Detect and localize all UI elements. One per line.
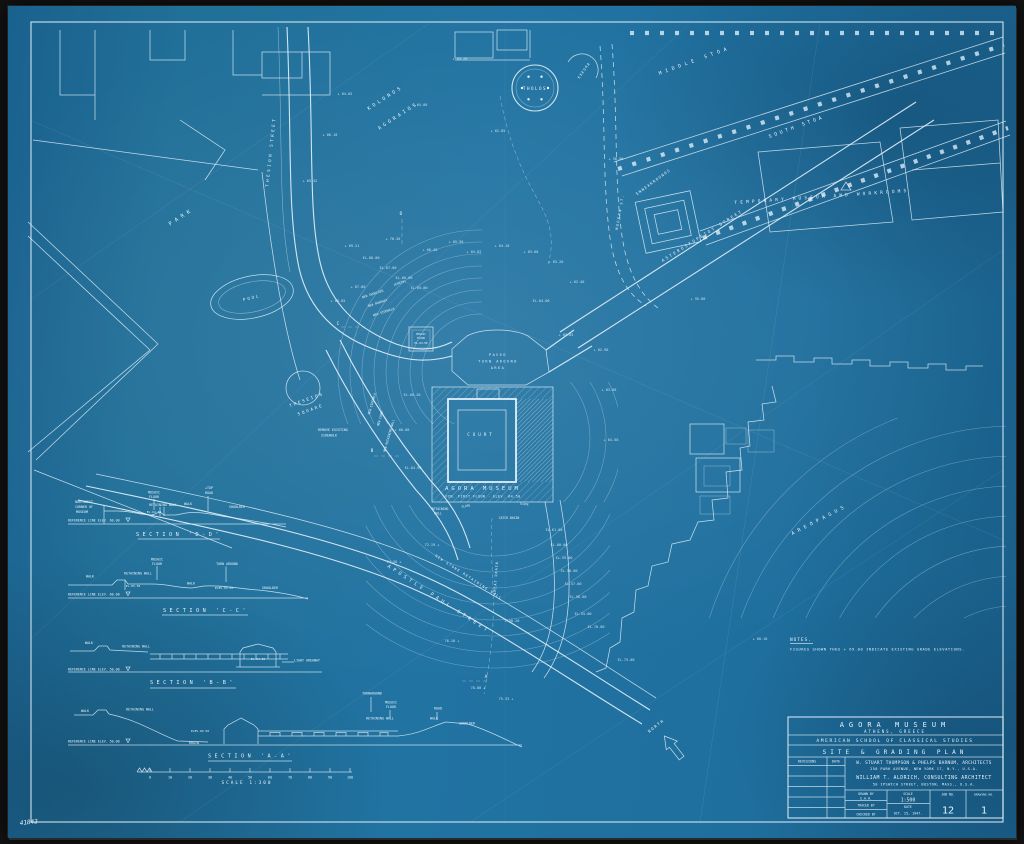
excavation-boundary (596, 386, 776, 672)
elevation-label: + 64.65 (338, 92, 353, 96)
scale-bar-number: 0 (149, 776, 151, 780)
section-label: TURNAROUND (362, 692, 382, 696)
scale-bar-numbers: 0102030405060708090100 (149, 776, 353, 780)
elevation-label: + 64.10 (495, 244, 510, 248)
label-tholos: THOLOS (523, 86, 547, 91)
section-label: TURN AROUND (216, 562, 238, 566)
elevation-label: 78.00 + (471, 686, 486, 690)
section-label: RETAINING WALL (122, 645, 150, 649)
section-label: CORNER OF (75, 505, 93, 509)
elevation-label: 76.10 + (445, 639, 460, 643)
traced-by-label: TRACED BY (857, 804, 874, 808)
elevation-label: + 67.80 (351, 285, 366, 289)
elevation-label: + 66.00 (395, 428, 410, 432)
middle-stoa-colonnade (618, 45, 1004, 169)
section-marker-b: B (371, 448, 374, 454)
elevation-label: 74.30 + (387, 560, 402, 564)
label-new-roadway: NEW ROADWAY (367, 298, 388, 308)
title-block: AGORA MUSEUM ATHENS, GREECE AMERICAN SCH… (788, 717, 1003, 818)
elevation-label: + 63.60 (524, 250, 539, 254)
reference-line-label: REFERENCE LINE ELEV. 60.00 (68, 593, 120, 597)
elevation-label: + 70.30 (386, 237, 401, 241)
label-retaining-wall: RETAINING (432, 507, 449, 511)
elevation-label: + 60.10 (753, 637, 768, 641)
label-new-shoulder: NEW SHOULDER (361, 289, 384, 300)
section-label: MOSAIC (385, 701, 397, 705)
elevation-label: EL.67.00 (380, 266, 397, 270)
elevation-label: + 68.05 (331, 299, 346, 303)
elevation-label: EL.66.00 (396, 276, 413, 280)
section-label: ROAD (434, 707, 442, 711)
titleblock-sheet-title: SITE & GRADING PLAN (823, 749, 968, 756)
label-middle-stoa: MIDDLE STOA (658, 45, 731, 77)
elevation-label: + 64.50 (604, 438, 619, 442)
scale-bar-number: 100 (347, 776, 353, 780)
workrooms-building (900, 120, 1003, 220)
south-stoa-edges (700, 121, 1010, 245)
section-label: WALK (184, 502, 192, 506)
elevation-label: EL.57.00 (565, 582, 582, 586)
label-paved-turnaround: TURN AROUND (478, 360, 518, 364)
middle-stoa-edges (614, 37, 1005, 176)
date-value: OCT. 15, 1947. (894, 812, 923, 816)
reference-line-label: REFERENCE LINE ELEV. 60.00 (68, 519, 120, 523)
section-title-aa: SECTION 'A-A' (208, 754, 294, 760)
elevation-label: EL.60.00 (551, 543, 568, 547)
elevation-label: + 64.82 (467, 250, 482, 254)
section-label: FLOOR (149, 495, 159, 499)
section-label: RETAINING WALL (126, 708, 154, 712)
label-new-curb: NEW CURB (376, 411, 384, 427)
label-north: NORTH (647, 718, 665, 734)
elevation-label: + 63.20 (549, 260, 564, 264)
label-mosaic-floor: FLOOR (417, 336, 425, 340)
elevation-label: EL.55.00 (575, 612, 592, 616)
reference-line-label: REFERENCE LINE ELEV. 50.00 (68, 740, 120, 744)
scale-bar-number: 10 (168, 776, 172, 780)
ancient-ruins (60, 30, 1010, 672)
section-label: WALK (85, 641, 93, 645)
elevation-label: EL.75.00 (618, 658, 635, 662)
label-museum-floor-elev: FIN. FIRST FLOOR - ELEV. 64.50 (445, 495, 520, 499)
scale-label: SCALE (903, 792, 913, 796)
label-slope: SLOPE (520, 501, 529, 506)
modern-street-dashed (612, 44, 658, 308)
elevation-labels: + 64.65+ 66.10+ 65.42+ 64.00+ 63.20+ 62.… (303, 57, 768, 701)
contour-lines-northwest (338, 230, 622, 514)
label-court: COURT (467, 432, 495, 437)
label-enneakrounos: ENNEAKROUNOS (635, 167, 672, 196)
section-label: SHOULDER (459, 722, 475, 726)
elevation-label: 72.19 + (425, 543, 440, 547)
section-title-bb: SECTION 'B-B' (150, 680, 236, 686)
scale-value: 1:500 (901, 798, 916, 804)
section-label: NORTHWEST (75, 500, 93, 504)
section-label: EL.64.50 (147, 510, 162, 514)
elevation-label: EL.59.00 (556, 556, 573, 560)
notes-block: NOTES. FIGURES SHOWN THUS + 69.00 INDICA… (790, 637, 965, 652)
label-remove-sidewalk: SIDEWALK (321, 434, 337, 438)
elevation-label: + 63.00 (602, 388, 617, 392)
elevation-label: + 55.80 (691, 297, 706, 301)
label-areopagus: AREOPAGUS (791, 503, 849, 536)
section-label: RETAINING WALL (366, 717, 394, 721)
section-label: ELEV.63.50 (215, 586, 233, 590)
elevation-label: EL.61.00 (546, 528, 563, 532)
label-paved-turnaround: PAVED (489, 353, 507, 357)
titleblock-location: ATHENS, GREECE (864, 729, 926, 734)
section-label: WALK (86, 575, 94, 579)
elevation-label: + 58.00 (609, 157, 624, 161)
scale-bar-label: SCALE 1:300 (221, 780, 272, 786)
section-marker-a: A (485, 674, 488, 680)
section-label: MOSAIC (148, 491, 160, 495)
great-drain-north (500, 96, 551, 264)
notes-body: FIGURES SHOWN THUS + 69.00 INDICATE EXIS… (790, 648, 965, 652)
section-label: +TOP (205, 486, 213, 490)
job-no-label: JOB NO. (941, 793, 955, 797)
date-label: DATE (904, 805, 912, 809)
section-label: DRAIN (189, 741, 199, 745)
drawn-by-value: E.A.H. (860, 797, 872, 801)
architect1: W. STUART THOMPSON & PHELPS BARNUM, ARCH… (856, 760, 991, 766)
label-pool: POOL (242, 293, 260, 302)
section-label: FLOOR (386, 705, 396, 709)
section-label: RETAINING WALL (149, 503, 177, 507)
section-title-cc: SECTION 'C-C' (163, 608, 249, 614)
elevation-label: EL.58.00 (561, 569, 578, 573)
scale-bar-number: 30 (208, 776, 212, 780)
reference-line-label: REFERENCE LINE ELEV. 50.00 (68, 668, 120, 672)
asteroskopeiou-north-curb (578, 120, 934, 348)
elevation-label: + 66.10 (323, 133, 338, 137)
elevation-label: + 62.85 (491, 129, 506, 133)
revisions-header: REVISIONS (798, 760, 816, 764)
section-label: LIGHT AREAWAY (294, 659, 320, 663)
label-kolonos-agoraios: KOLONOS (367, 84, 405, 111)
south-stoa-colonnade (703, 128, 1008, 238)
architect2-address: 50 IPSWICH STREET, BOSTON, MASS., U.S.A. (873, 783, 976, 787)
section-label: MUSEUM (76, 510, 88, 514)
park-area (28, 140, 320, 548)
section-marker-c: C (337, 321, 340, 327)
section-marker-d: D (400, 211, 403, 217)
scale-bar-number: 70 (288, 776, 292, 780)
label-retaining-wall: WALL (434, 512, 442, 516)
scale-bar-number: 80 (308, 776, 312, 780)
elevation-label: EL.68.00 (363, 256, 380, 260)
section-label: FLOOR (152, 562, 162, 566)
section-label: RETAINING WALL (124, 572, 152, 576)
job-no-value: 12 (942, 806, 954, 817)
label-agora-museum: AGORA MUSEUM (445, 486, 521, 492)
section-title-dd: SECTION 'D-D' (136, 532, 222, 538)
scale-bar-number: 40 (228, 776, 232, 780)
label-exedra: EXEDRA (577, 62, 591, 80)
label-mosaic-floor: EL.64.90 (415, 341, 428, 345)
label-modern-street: MODERN ST. (615, 193, 625, 230)
thesion-street-east-curb (308, 27, 396, 344)
elevation-label: + 62.40 (570, 280, 585, 284)
scale-bar-number: 50 (248, 776, 252, 780)
scale-bar-number: 60 (268, 776, 272, 780)
titleblock-institution: AMERICAN SCHOOL OF CLASSICAL STUDIES (816, 738, 973, 744)
label-new-sidewalk: NEW SIDEWALK (372, 307, 395, 318)
margin-note: 41842 (19, 818, 38, 827)
drawing-no-value: 1 (981, 806, 987, 817)
architect2: WILLIAM T. ALDRICH, CONSULTING ARCHITECT (856, 775, 992, 781)
elevation-label: EL.70.00 (588, 625, 605, 629)
drawing-no-label: DRAWING NO. (974, 793, 994, 797)
elevation-label: + 62.90 (594, 348, 609, 352)
scale-bar (137, 768, 352, 772)
revisions-date-header: DATE (832, 760, 840, 764)
titleblock-project: AGORA MUSEUM (840, 721, 951, 729)
elevation-label: + 64.00 (413, 103, 428, 107)
section-label: EL.64.50 (251, 657, 266, 661)
elevation-label: + 63.85 (559, 333, 574, 337)
section-label: ROAD (205, 491, 213, 495)
label-remove-sidewalk: REMOVE EXISTING (318, 428, 348, 432)
elevation-label: + 65.42 (303, 179, 318, 183)
label-park: PARK (168, 207, 195, 228)
architect1-address: 250 PARK AVENUE, NEW YORK 17, N.Y., U.S.… (870, 767, 978, 771)
blueprint-photo: NOTES. FIGURES SHOWN THUS + 69.00 INDICA… (0, 0, 1024, 844)
scale-bar-number: 90 (328, 776, 332, 780)
elevation-label: + 65.90 (449, 240, 464, 244)
label-catch-basin: CATCH BASIN (499, 516, 520, 520)
elevation-label: EL.65.00 (411, 286, 428, 290)
museum-court (458, 410, 506, 470)
label-slope: SLOPE (461, 503, 470, 508)
label-great-drain: GREAT DRAIN (493, 561, 499, 595)
section-label: MOSAIC (151, 558, 163, 562)
south-branch-east-curb (340, 340, 470, 548)
section-label: ELEV.64.50 (191, 729, 209, 733)
scale-bar-number: 20 (188, 776, 192, 780)
ruins-northwest (60, 30, 185, 120)
section-label: WALK (81, 709, 89, 713)
drawn-by-label: DRAWN BY (858, 792, 873, 796)
elevation-label: EL.56.00 (570, 595, 587, 599)
elevation-label: 75.33 + (499, 697, 514, 701)
elevation-label: + 69.21 (345, 244, 360, 248)
north-arrow-icon (659, 732, 687, 763)
label-apostle-paul-street: APOSTLE PAUL STREET (386, 564, 491, 635)
apostle-paul-retaining-wall (96, 474, 656, 698)
elevation-label: + 63.20 (453, 57, 468, 61)
notes-title: NOTES. (790, 637, 812, 643)
section-label: WALK (430, 717, 438, 721)
section-label: SHOULDER (229, 505, 245, 509)
label-paved-turnaround: AREA (491, 366, 505, 370)
elevation-label: EL.64.90 (405, 466, 422, 470)
elevation-label: EL.66.20 (404, 393, 421, 397)
ruins-north (233, 30, 330, 95)
section-label: SHOULDER (262, 586, 278, 590)
elevation-label: + 58.20 (505, 619, 520, 623)
section-label: WALK (187, 582, 195, 586)
checked-by-label: CHECKED BY (856, 813, 875, 817)
site-grading-plan: NOTES. FIGURES SHOWN THUS + 69.00 INDICA… (0, 0, 1024, 844)
section-label: EL.65.50 (126, 584, 141, 588)
label-thesion-street: THESION STREET (264, 117, 276, 187)
paved-turnaround-outline (452, 330, 549, 385)
elevation-label: + 66.40 (423, 248, 438, 252)
elevation-label: EL.64.00 (533, 299, 550, 303)
stepped-wall (756, 356, 983, 370)
